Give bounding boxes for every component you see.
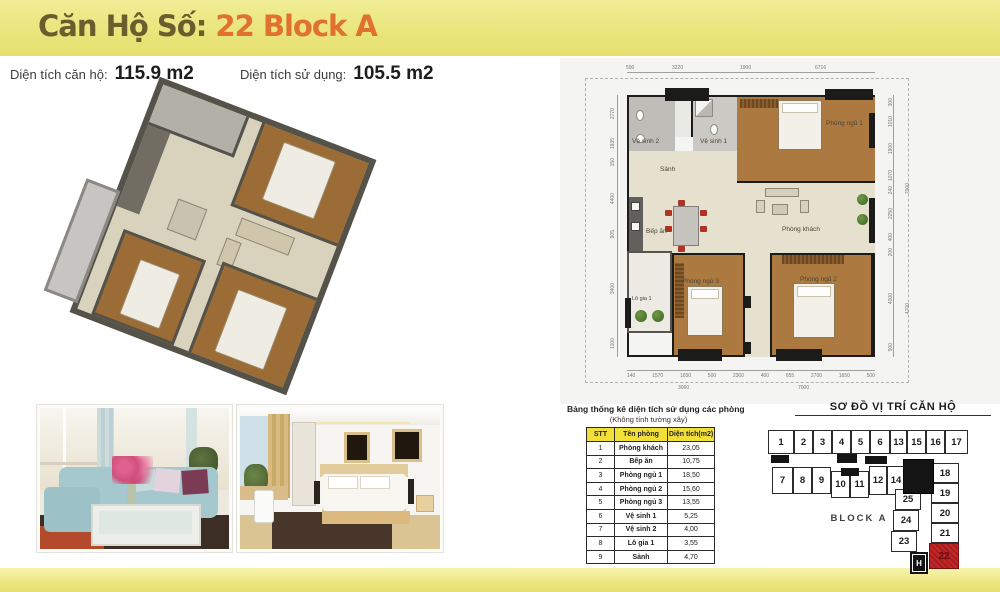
dining-table <box>673 206 699 246</box>
coffee-table-2d <box>772 204 788 215</box>
dim-left-4: 4400 <box>610 193 616 204</box>
sofa-chair-right <box>800 200 809 213</box>
title-unit-number: 22 Block A <box>215 9 376 43</box>
dim-top-2: 3220 <box>672 65 683 71</box>
cell-stt: 7 <box>587 523 615 537</box>
table-row: 2Bếp ăn10,75 <box>587 455 715 469</box>
wall-top-right-header <box>825 89 873 100</box>
unit-cell: 5 <box>851 430 870 454</box>
unit-cell: 3 <box>813 430 832 454</box>
room-sanh <box>629 151 737 197</box>
header-dien-tich: Diện tích(m2) <box>668 428 715 442</box>
bedroom-photo <box>237 405 443 552</box>
iso-apartment <box>70 77 377 395</box>
wall-corridor-stub2 <box>743 342 751 354</box>
cell-stt: 5 <box>587 496 615 510</box>
iso-dining-table <box>166 198 207 240</box>
dim-bottom-total2: 7000 <box>798 385 809 391</box>
dining-chair5 <box>678 200 685 206</box>
cell-stt: 2 <box>587 455 615 469</box>
wall-left-seg <box>625 298 631 328</box>
main-core-block <box>903 459 934 494</box>
photo1-pillow3 <box>181 469 209 495</box>
plant-living1 <box>857 194 868 205</box>
unit-cell: 24 <box>893 510 919 531</box>
bed2-pillow <box>797 286 831 297</box>
cell-room: Phòng ngủ 2 <box>615 482 668 496</box>
cell-stt: 9 <box>587 550 615 564</box>
dim-line-bottom <box>627 370 875 371</box>
dim-bottom-row: 140 1570 1650 500 2300 400 655 2700 1650… <box>627 373 875 379</box>
area-table: STT Tên phòng Diện tích(m2) 1Phòng khách… <box>586 427 715 564</box>
cell-room: Lô gia 1 <box>615 537 668 551</box>
photo2-picture1 <box>344 432 370 463</box>
photo1-pillow2 <box>154 468 180 493</box>
block-label: BLOCK A <box>817 513 901 524</box>
cell-stt: 8 <box>587 537 615 551</box>
bed-phong-ngu-2 <box>793 283 835 338</box>
wardrobe-bedroom3 <box>675 263 684 318</box>
elevator-h-icon: H <box>910 552 928 574</box>
unit-cell: 8 <box>793 467 812 494</box>
area-table-header-row: STT Tên phòng Diện tích(m2) <box>587 428 715 442</box>
bed-phong-ngu-3 <box>687 286 723 336</box>
room-shaft <box>675 97 693 137</box>
total-area-value: 115.9 m2 <box>115 63 194 85</box>
dim-right-9: 4000 <box>888 293 894 304</box>
sofa-main <box>765 188 799 197</box>
dim-left-5: 905 <box>610 230 616 238</box>
unit-cell: 20 <box>931 503 959 523</box>
shower-ve-sinh-1 <box>695 99 713 117</box>
dim-left-1: 2770 <box>610 108 616 119</box>
dim-top-1: 590 <box>626 65 634 71</box>
floorplan-2d: Vệ sinh 2 Vệ sinh 1 Phòng ngủ 1 Sảnh Bếp… <box>560 58 1000 404</box>
wall-right-seg2 <box>869 198 875 243</box>
cell-stt: 6 <box>587 509 615 523</box>
cell-stt: 4 <box>587 482 615 496</box>
label-phong-ngu-3: Phòng ngủ 3 <box>682 278 719 285</box>
dim-bottom-total1: 3060 <box>678 385 689 391</box>
plant-balcony2 <box>652 310 664 322</box>
dim-right-1: 300 <box>888 98 894 106</box>
usable-area-value: 105.5 m2 <box>353 63 433 85</box>
unit-cell: 7 <box>772 467 793 494</box>
elevator-core <box>837 454 857 463</box>
dim-right-total1: 7000 <box>905 183 911 194</box>
cell-area: 3,55 <box>668 537 715 551</box>
table-row: 1Phòng khách23,05 <box>587 442 715 456</box>
plant-living2 <box>857 214 868 225</box>
photo2-bed-base <box>322 511 410 524</box>
dim-bottom-1: 140 <box>627 373 635 379</box>
dim-right-6: 2250 <box>888 208 894 219</box>
cell-area: 15,60 <box>668 482 715 496</box>
cell-area: 18,50 <box>668 469 715 483</box>
cell-room: Bếp ăn <box>615 455 668 469</box>
label-ve-sinh-2: Vệ sinh 2 <box>632 138 659 145</box>
dim-left-3: 150 <box>610 158 616 166</box>
location-diagram-title: SƠ ĐỒ VỊ TRÍ CĂN HỘ <box>795 401 991 416</box>
dim-bottom-6: 400 <box>761 373 769 379</box>
bed1-pillow <box>782 103 817 113</box>
toilet-ve-sinh-1 <box>710 124 718 135</box>
photo2-nightstand <box>416 495 434 511</box>
sofa-chair-left <box>756 200 765 213</box>
label-phong-ngu-2: Phòng ngủ 2 <box>800 276 837 283</box>
dim-right-4: 1070 <box>888 170 894 181</box>
photo2-speaker2 <box>408 479 414 504</box>
unit-cell: 1 <box>768 430 794 454</box>
cell-area: 4,70 <box>668 550 715 564</box>
dim-left-2: 1935 <box>610 138 616 149</box>
cell-area: 13,55 <box>668 496 715 510</box>
dim-top-4: 6716 <box>815 65 826 71</box>
total-area-label: Diện tích căn hộ: <box>10 67 108 82</box>
iso-bed1 <box>262 142 336 220</box>
dim-bottom-2: 1570 <box>652 373 663 379</box>
dim-right-3: 1900 <box>888 143 894 154</box>
cell-room: Vệ sinh 2 <box>615 523 668 537</box>
header-ten-phong: Tên phòng <box>615 428 668 442</box>
photo2-wardrobe <box>292 422 316 506</box>
dim-bottom-3: 1650 <box>680 373 691 379</box>
unit-cell: 16 <box>926 430 945 454</box>
cell-room: Phòng ngủ 3 <box>615 496 668 510</box>
wall-right-seg1 <box>869 113 875 148</box>
iso-bedroom3 <box>92 229 207 346</box>
cell-room: Vệ sinh 1 <box>615 509 668 523</box>
wardrobe-bedroom1 <box>740 99 778 108</box>
iso-floorplan-3d <box>55 84 395 402</box>
dim-bottom-4: 500 <box>708 373 716 379</box>
cell-stt: 1 <box>587 442 615 456</box>
cell-room: Phòng ngủ 1 <box>615 469 668 483</box>
dim-bottom-7: 655 <box>786 373 794 379</box>
page-title: Căn Hộ Số: 22 Block A <box>38 9 377 43</box>
label-ve-sinh-1: Vệ sinh 1 <box>700 138 727 145</box>
unit-cell: 4 <box>832 430 851 454</box>
dim-line-top <box>627 72 875 73</box>
cell-stt: 3 <box>587 469 615 483</box>
elevator-core <box>841 468 859 476</box>
unit-cell: 18 <box>931 463 959 483</box>
unit-cell-highlighted: 22 <box>929 543 959 569</box>
table-row: 7Vệ sinh 24,00 <box>587 523 715 537</box>
photo2-speaker1 <box>314 481 320 504</box>
toilet-ve-sinh-2 <box>636 110 644 121</box>
photo1-glass-top <box>99 511 192 534</box>
photo2-pillow2 <box>360 476 390 489</box>
dim-right-8: 200 <box>888 248 894 256</box>
cell-room: Sảnh <box>615 550 668 564</box>
wall-bottom-left-header <box>678 349 722 361</box>
header-banner: Căn Hộ Số: 22 Block A <box>0 0 1000 56</box>
cell-area: 5,25 <box>668 509 715 523</box>
dim-line-left <box>617 95 618 357</box>
dim-line-right <box>893 95 894 357</box>
brochure-page: Căn Hộ Số: 22 Block A Diện tích căn hộ: … <box>0 0 1000 592</box>
photo1-coffee-table <box>91 504 201 546</box>
unit-cell: 23 <box>891 531 917 552</box>
iso-bed3 <box>119 259 181 330</box>
photo2-cove-light <box>300 422 410 424</box>
wall-bottom-right-header <box>776 349 822 361</box>
cell-area: 23,05 <box>668 442 715 456</box>
wall-entry-header <box>665 88 709 101</box>
dim-left-7: 1100 <box>610 338 616 349</box>
photo2-chair <box>254 490 274 523</box>
unit-cell: 2 <box>794 430 813 454</box>
unit-cell: 19 <box>931 483 959 503</box>
footer-banner <box>0 568 1000 592</box>
elevator-core <box>865 456 887 464</box>
title-prefix: Căn Hộ Số: <box>38 9 206 43</box>
usable-area-label: Diện tích sử dụng: <box>240 67 346 82</box>
label-bep-an: Bếp ăn <box>646 228 667 235</box>
wardrobe-bedroom2 <box>782 255 844 264</box>
iso-kitchen-strip <box>117 125 171 214</box>
kitchen-stove <box>631 222 640 231</box>
room-phong-khach <box>737 183 875 253</box>
living-room-photo <box>37 405 232 552</box>
elevator-core <box>771 455 789 463</box>
photo2-pillow1 <box>328 476 358 489</box>
label-lo-gia-1: Lô gia 1 <box>632 296 652 302</box>
label-phong-khach: Phòng khách <box>782 226 820 233</box>
dim-right-7: 400 <box>888 233 894 241</box>
table-row: 9Sảnh4,70 <box>587 550 715 564</box>
room-lo-gia-1 <box>627 251 672 333</box>
dim-bottom-10: 500 <box>867 373 875 379</box>
iso-bedroom2 <box>188 262 317 388</box>
dim-right-total2: 4700 <box>905 303 911 314</box>
iso-bed2 <box>214 289 288 371</box>
kitchen-sink <box>631 202 640 211</box>
table-row: 4Phòng ngủ 215,60 <box>587 482 715 496</box>
table-row: 5Phòng ngủ 313,55 <box>587 496 715 510</box>
dim-right-5: 240 <box>888 186 894 194</box>
cell-area: 4,00 <box>668 523 715 537</box>
usable-area: Diện tích sử dụng: 105.5 m2 <box>240 63 434 85</box>
unit-cell: 12 <box>869 466 887 495</box>
dim-bottom-5: 2300 <box>733 373 744 379</box>
label-sanh: Sảnh <box>660 166 675 173</box>
unit-cell: 13 <box>890 430 907 454</box>
area-table-title: Bảng thống kê diện tích sử dụng các phòn… <box>567 404 797 414</box>
dim-bottom-9: 1650 <box>839 373 850 379</box>
photo1-vase <box>127 481 136 504</box>
label-phong-ngu-1: Phòng ngủ 1 <box>826 120 863 127</box>
cell-room: Phòng khách <box>615 442 668 456</box>
table-row: 3Phòng ngủ 118,50 <box>587 469 715 483</box>
header-stt: STT <box>587 428 615 442</box>
dining-chair3 <box>700 210 707 216</box>
dim-right-2: 1010 <box>888 116 894 127</box>
dining-chair4 <box>700 226 707 232</box>
unit-cell: 9 <box>812 467 831 494</box>
cell-area: 10,75 <box>668 455 715 469</box>
dining-chair6 <box>678 246 685 252</box>
dim-left-6: 3400 <box>610 283 616 294</box>
unit-location-diagram: 1 2 3 4 5 6 13 15 16 17 7 8 9 10 11 12 1… <box>765 425 1000 570</box>
dim-top-3: 1900 <box>740 65 751 71</box>
area-table-subtitle: (Không tính tường xây) <box>586 415 711 424</box>
plant-balcony1 <box>635 310 647 322</box>
unit-cell: 17 <box>945 430 968 454</box>
bed3-pillow <box>691 289 720 299</box>
bed-phong-ngu-1 <box>778 100 822 150</box>
photo1-flowers <box>112 456 154 484</box>
unit-cell: 21 <box>931 523 959 543</box>
unit-cell: 15 <box>907 430 926 454</box>
unit-cell: 6 <box>870 430 890 454</box>
dim-bottom-8: 2700 <box>811 373 822 379</box>
dim-right-10: 500 <box>888 343 894 351</box>
photo2-picture2 <box>392 429 422 462</box>
table-row: 6Vệ sinh 15,25 <box>587 509 715 523</box>
wall-corridor-stub1 <box>743 296 751 308</box>
table-row: 8Lô gia 13,55 <box>587 537 715 551</box>
dining-chair1 <box>665 210 672 216</box>
